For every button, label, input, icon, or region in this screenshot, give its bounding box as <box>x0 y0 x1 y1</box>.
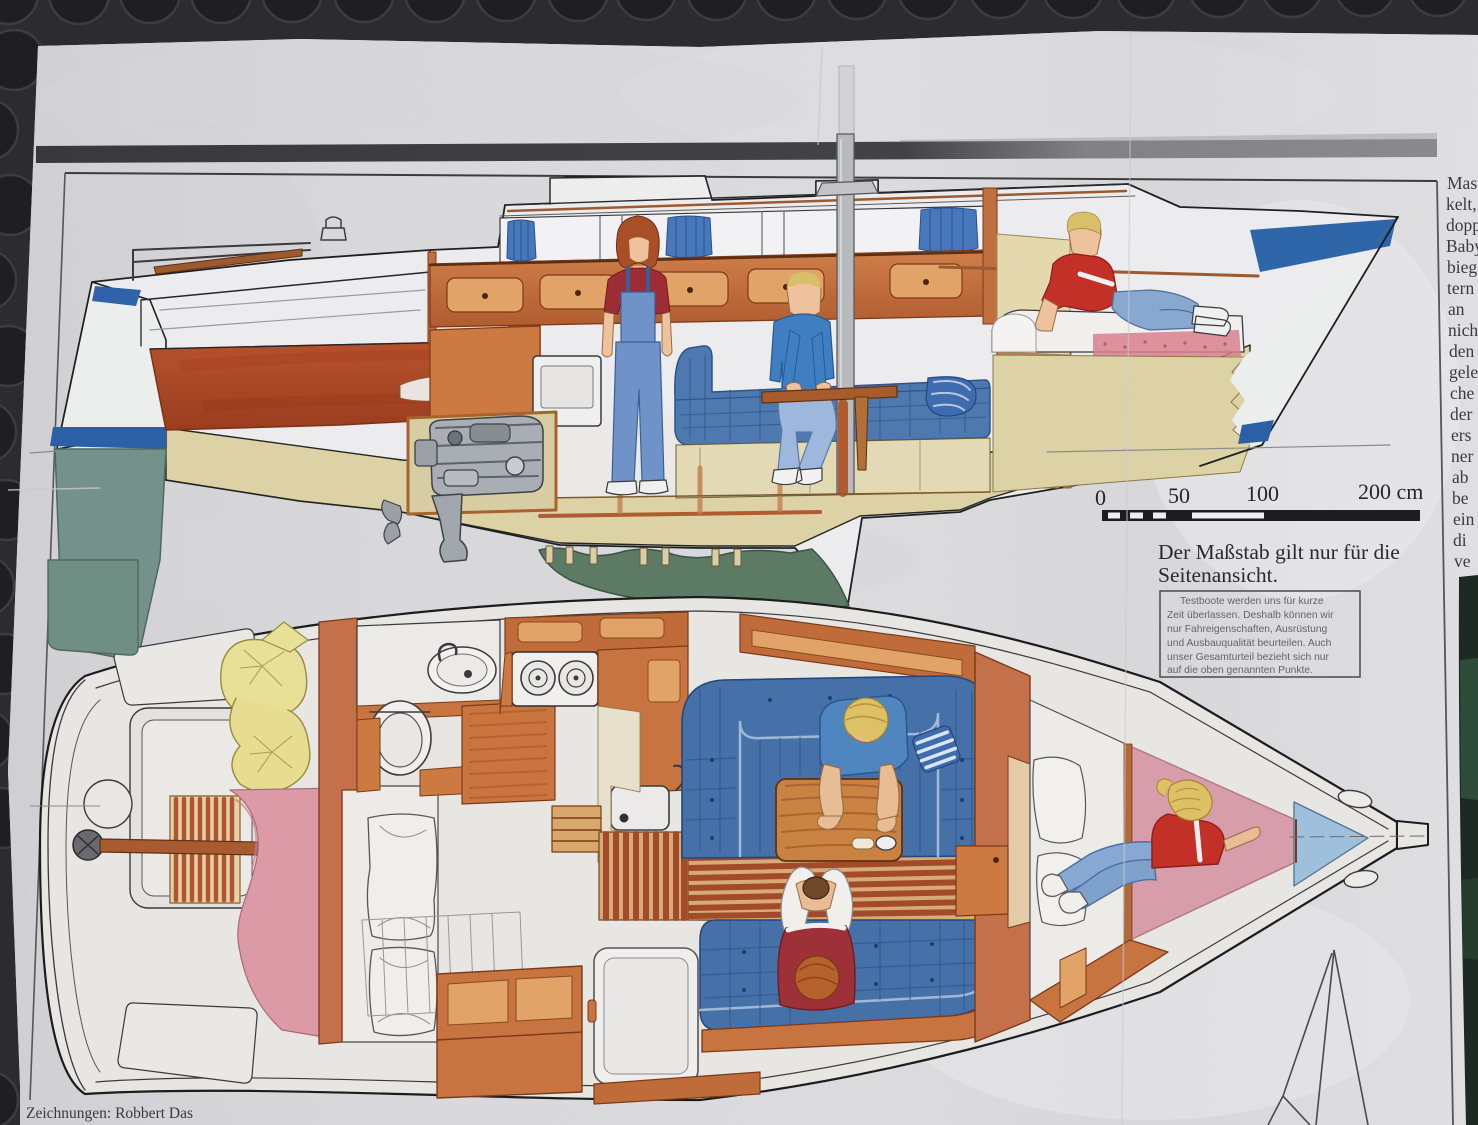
svg-text:Seitenansicht.: Seitenansicht. <box>1158 563 1278 587</box>
svg-text:50: 50 <box>1168 483 1190 508</box>
svg-text:Zeichnungen: Robbert Das: Zeichnungen: Robbert Das <box>26 1105 193 1122</box>
svg-text:100: 100 <box>1246 481 1279 506</box>
svg-text:gele: gele <box>1449 362 1478 382</box>
svg-text:ner: ner <box>1451 446 1474 466</box>
svg-text:auf die oben genannten Punkte.: auf die oben genannten Punkte. <box>1167 665 1313 676</box>
svg-text:Testboote werden uns für kurze: Testboote werden uns für kurze <box>1180 596 1324 607</box>
svg-text:che: che <box>1450 383 1475 403</box>
svg-text:an: an <box>1448 299 1465 319</box>
svg-text:ein: ein <box>1453 509 1475 529</box>
svg-text:di: di <box>1453 530 1467 550</box>
svg-text:0: 0 <box>1095 485 1106 510</box>
svg-text:ers: ers <box>1451 425 1472 445</box>
svg-text:Baby: Baby <box>1446 236 1478 256</box>
svg-text:Mast: Mast <box>1447 173 1478 193</box>
svg-text:bieg: bieg <box>1447 257 1477 277</box>
svg-text:Zeit überlassen. Deshalb könne: Zeit überlassen. Deshalb können wir <box>1167 610 1334 621</box>
svg-text:den: den <box>1449 341 1475 361</box>
svg-text:dopp: dopp <box>1446 215 1478 235</box>
svg-text:ve: ve <box>1454 551 1471 571</box>
svg-text:tern: tern <box>1447 278 1474 298</box>
svg-text:nur Fahreigenschaften, Ausrüst: nur Fahreigenschaften, Ausrüstung <box>1167 624 1328 635</box>
svg-text:und Ausbauqualität beurteilen.: und Ausbauqualität beurteilen. Auch <box>1167 638 1332 649</box>
svg-text:kelt,: kelt, <box>1446 194 1477 214</box>
svg-text:200 cm: 200 cm <box>1358 479 1423 504</box>
svg-text:der: der <box>1450 404 1473 424</box>
svg-text:unser Gesamturteil bezieht sic: unser Gesamturteil bezieht sich nur <box>1167 652 1330 663</box>
svg-text:nich: nich <box>1448 320 1478 340</box>
svg-text:Der Maßstab gilt nur für die: Der Maßstab gilt nur für die <box>1158 540 1400 564</box>
svg-text:be: be <box>1452 488 1469 508</box>
svg-text:ab: ab <box>1452 467 1469 487</box>
